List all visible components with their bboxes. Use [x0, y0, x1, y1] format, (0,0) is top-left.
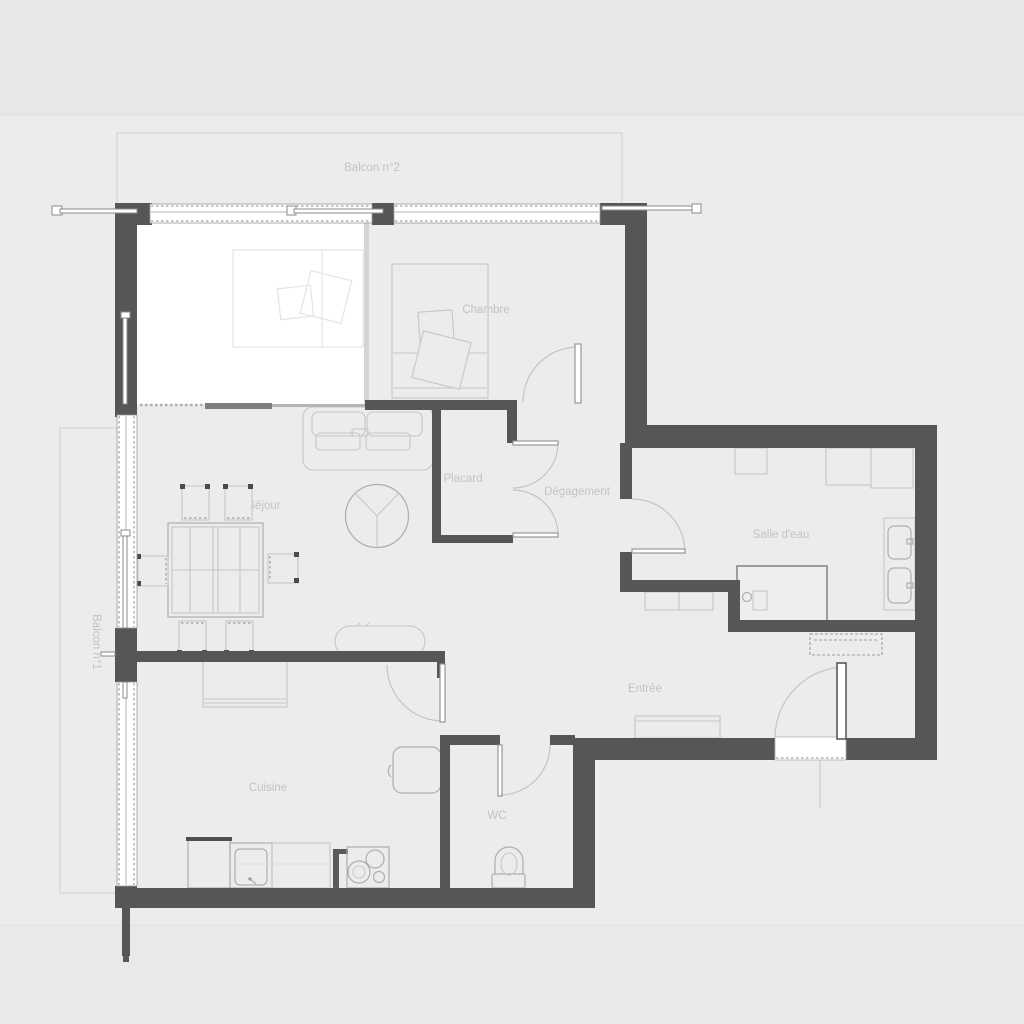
rail	[294, 209, 383, 213]
wall-segment	[728, 620, 917, 632]
hotspot-chambre[interactable]	[372, 225, 625, 401]
wall-segment	[365, 400, 517, 410]
hotspot-entree[interactable]	[595, 632, 915, 738]
wall-segment	[115, 628, 137, 682]
background-band-bottom	[0, 925, 1024, 1024]
wall-segment	[115, 888, 595, 908]
rail	[123, 318, 127, 404]
hotspot-sejour[interactable]	[137, 412, 437, 652]
hotspot-wc[interactable]	[450, 745, 573, 888]
wall-segment	[432, 535, 513, 543]
wall-segment	[135, 651, 445, 662]
rail-cap	[121, 530, 130, 536]
rail	[60, 209, 137, 213]
wall-segment	[625, 203, 647, 448]
wall-segment	[620, 443, 632, 499]
wall-segment	[915, 425, 937, 760]
wall-extension-cap	[123, 956, 129, 962]
rail	[123, 682, 127, 698]
wall-segment	[440, 735, 450, 890]
door-leaf	[440, 664, 445, 722]
rail	[123, 536, 127, 628]
hotspot-placard[interactable]	[441, 410, 507, 535]
door-threshold	[775, 737, 846, 760]
wall-stub	[507, 410, 517, 443]
hotspot-degagement[interactable]	[517, 410, 620, 590]
wall-segment	[625, 425, 937, 448]
hotspot-salle-deau[interactable]	[632, 448, 915, 620]
wall-extension	[122, 908, 130, 956]
wall-segment	[573, 738, 775, 760]
floor-plan-viewer: Balcon n°2 Balcon n°1 Chambre Placard Dé…	[0, 0, 1024, 1024]
partition-segment	[272, 404, 365, 407]
partition-segment	[205, 403, 272, 409]
wall-segment	[846, 738, 937, 760]
wall-segment	[372, 203, 394, 225]
wall-segment	[115, 886, 137, 908]
wall-segment	[573, 738, 595, 908]
rail	[101, 652, 115, 656]
hotspot-bedroom2[interactable]	[137, 222, 365, 403]
background-band-top	[0, 0, 1024, 115]
room-label-balcony2: Balcon n°2	[344, 162, 400, 174]
rail	[602, 206, 694, 210]
rail-cap	[692, 204, 701, 213]
wall-segment	[550, 735, 575, 745]
floor-plan-canvas: Balcon n°2 Balcon n°1 Chambre Placard Dé…	[0, 0, 1024, 1024]
window-left-lower	[117, 682, 137, 886]
hotspot-cuisine[interactable]	[137, 663, 440, 888]
window-top-right	[394, 204, 600, 223]
room-label-balcony1: Balcon n°1	[90, 614, 102, 670]
rail-cap	[121, 312, 130, 318]
